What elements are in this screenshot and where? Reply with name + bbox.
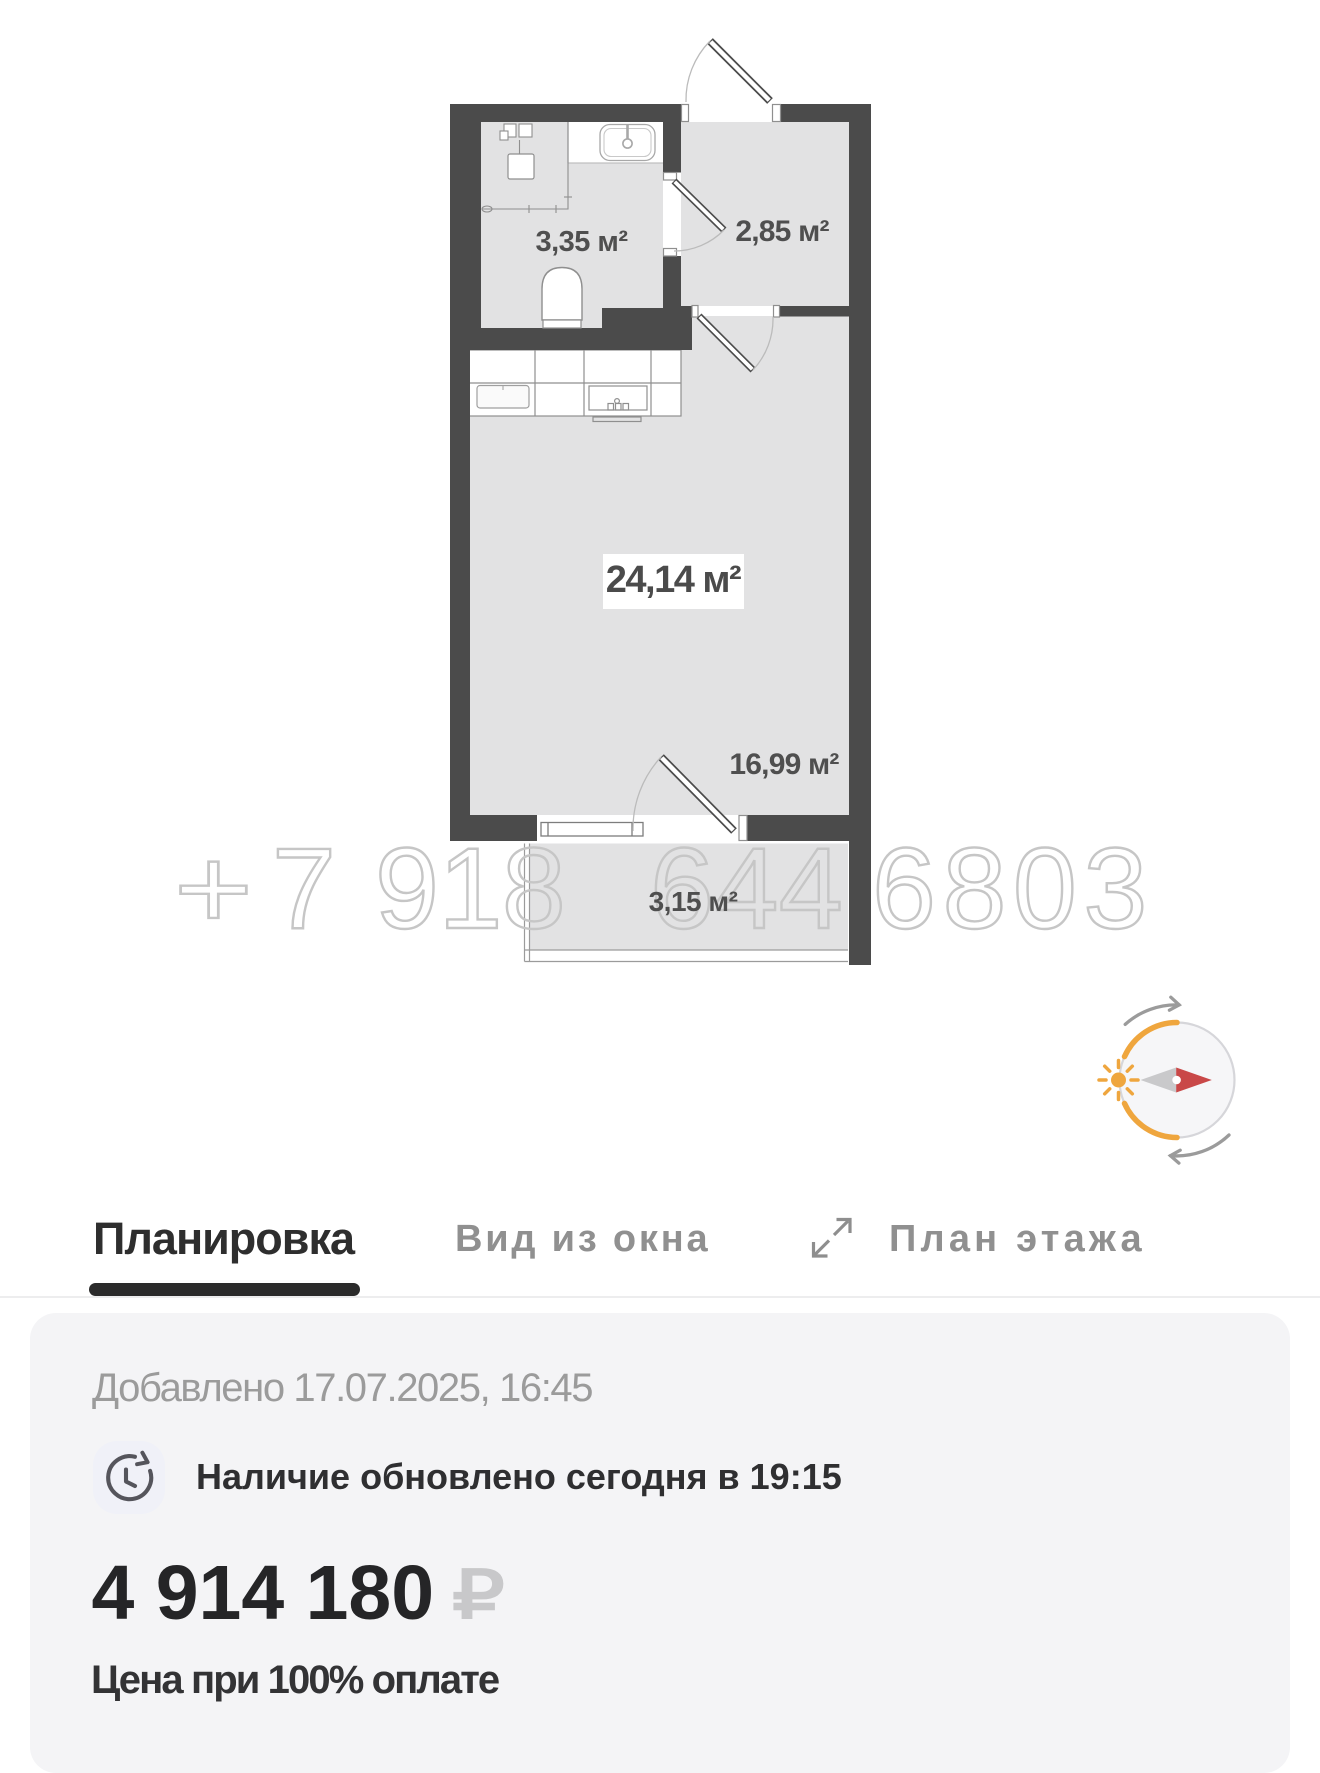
svg-text:+: + (174, 825, 253, 953)
svg-text:24,14 м²: 24,14 м² (606, 559, 741, 601)
svg-text:7: 7 (272, 825, 336, 953)
svg-text:2,85 м²: 2,85 м² (735, 215, 829, 248)
svg-text:16,99 м²: 16,99 м² (729, 748, 839, 781)
svg-text:918: 918 (375, 825, 565, 953)
svg-text:3,35 м²: 3,35 м² (535, 226, 628, 258)
svg-text:6803: 6803 (872, 825, 1154, 953)
svg-text:3,15 м²: 3,15 м² (649, 886, 738, 917)
